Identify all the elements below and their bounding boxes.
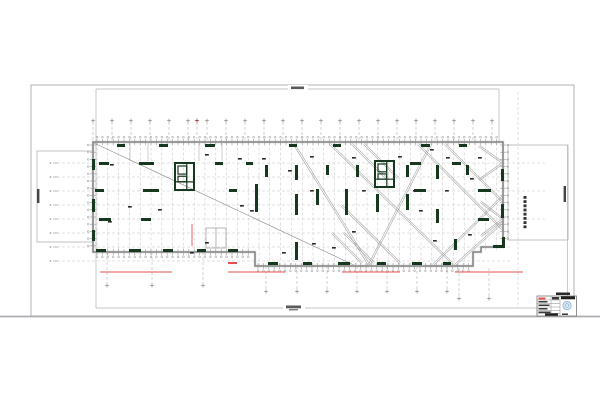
edge-tick-circle — [393, 136, 395, 138]
edge-tick-circle — [199, 136, 201, 138]
wall-segment — [501, 204, 504, 218]
grid-stub-dot — [356, 291, 358, 293]
outer-border — [31, 85, 574, 316]
edge-tick-circle — [161, 256, 163, 258]
edge-tick-circle — [274, 136, 276, 138]
wall-segment — [338, 262, 350, 265]
edge-tick-circle — [193, 136, 195, 138]
edge-tick-circle — [96, 136, 98, 138]
wall-segment — [268, 262, 278, 265]
edge-tick-circle — [452, 270, 454, 272]
grid-stub-dot — [491, 120, 493, 122]
edge-tick-circle — [318, 136, 320, 138]
edge-tick-circle — [231, 256, 233, 258]
edge-tick-circle — [215, 256, 217, 258]
microtext-mark — [413, 190, 417, 192]
wall-segment — [295, 194, 298, 215]
wall-segment — [95, 189, 104, 192]
edge-tick-circle — [87, 180, 89, 182]
drawing-sheet — [0, 0, 600, 400]
edge-tick-circle — [242, 136, 244, 138]
title-block-text-bar — [562, 314, 568, 316]
edge-tick-circle — [220, 256, 222, 258]
grid-stub-dot — [282, 120, 284, 122]
wall-segment — [159, 144, 168, 147]
grid-stub-dot — [386, 291, 388, 293]
edge-tick-circle — [322, 270, 324, 272]
edge-tick-circle — [172, 256, 174, 258]
edge-tick-circle — [156, 256, 158, 258]
edge-tick-circle — [311, 270, 313, 272]
grid-stub-dot — [396, 120, 398, 122]
microtext-mark — [332, 247, 336, 249]
edge-tick-circle — [366, 136, 368, 138]
microtext-mark — [433, 240, 437, 242]
grid-stub-dot — [196, 120, 198, 122]
wall-segment — [478, 218, 489, 221]
wall-segment — [197, 249, 206, 252]
edge-tick-circle — [139, 136, 141, 138]
vertical-microtext-stack — [524, 204, 527, 207]
vertical-microtext — [37, 189, 39, 203]
title-block-red-text — [539, 298, 546, 300]
brace-line — [419, 143, 504, 229]
edge-tick-circle — [193, 256, 195, 258]
grid-stub-dot — [265, 291, 267, 293]
approval-stamp-icon — [563, 301, 571, 309]
drawing-title-microtext — [286, 306, 301, 309]
edge-tick-circle — [145, 136, 147, 138]
wall-segment — [141, 218, 151, 221]
grid-stub-dot — [225, 120, 227, 122]
edge-tick-circle — [392, 270, 394, 272]
edge-tick-circle — [237, 136, 239, 138]
edge-tick-circle — [107, 136, 109, 138]
grid-stub-dot — [458, 298, 460, 300]
edge-tick-circle — [372, 136, 374, 138]
edge-tick-circle — [87, 144, 89, 146]
brace-line — [432, 195, 502, 264]
edge-tick-circle — [87, 159, 89, 161]
wall-segment — [92, 199, 95, 212]
edge-tick-circle — [134, 136, 136, 138]
edge-tick-circle — [210, 256, 212, 258]
microtext-mark — [446, 157, 450, 159]
grid-stub-dot — [168, 120, 170, 122]
edge-tick-circle — [183, 256, 185, 258]
edge-tick-circle — [269, 136, 271, 138]
microtext-mark — [288, 170, 292, 172]
bracing — [94, 143, 504, 266]
edge-tick-circle — [102, 136, 104, 138]
edge-tick-circle — [469, 136, 471, 138]
edge-tick-circle — [177, 256, 179, 258]
edge-tick-circle — [231, 136, 233, 138]
edge-tick-circle — [306, 270, 308, 272]
wall-segment — [295, 242, 298, 260]
grid-terminator-dot — [50, 260, 52, 262]
wall-segment — [478, 189, 491, 192]
edge-tick-circle — [457, 270, 459, 272]
edge-tick-circle — [226, 256, 228, 258]
vertical-microtext-stack — [524, 196, 527, 199]
wall-segment — [255, 184, 258, 212]
wall-segment — [377, 262, 386, 265]
vertical-microtext-stack — [524, 221, 527, 224]
title-block-black-bar — [561, 296, 575, 299]
wall-segment — [139, 162, 154, 165]
edge-tick-circle — [409, 136, 411, 138]
edge-tick-circle — [172, 136, 174, 138]
edge-tick-circle — [166, 136, 168, 138]
grid-stub-dot — [130, 120, 132, 122]
drawing-scale-microtext — [289, 309, 298, 310]
edge-tick-circle — [431, 136, 433, 138]
microtext-mark — [310, 190, 314, 192]
edge-tick-circle — [87, 202, 89, 204]
red-microtext — [228, 262, 237, 264]
wall-segment — [326, 165, 329, 175]
edge-tick-circle — [382, 136, 384, 138]
wall-segment — [129, 249, 141, 252]
edge-tick-circle — [257, 270, 259, 272]
edge-tick-circle — [360, 270, 362, 272]
edge-tick-circle — [441, 270, 443, 272]
wall-segment — [229, 189, 237, 192]
grid-stub-dot — [415, 120, 417, 122]
edge-tick-circle — [87, 173, 89, 175]
sheet-frames — [0, 85, 600, 317]
grid-terminator-dot — [50, 218, 52, 220]
edge-tick-circle — [273, 270, 275, 272]
edge-tick-circle — [435, 270, 437, 272]
title-block-text-bar — [539, 301, 548, 303]
edge-tick-circle — [150, 256, 152, 258]
edge-tick-circle — [279, 270, 281, 272]
grid-terminator-dot — [50, 190, 52, 192]
edge-tick-circle — [442, 136, 444, 138]
wall-segment — [412, 262, 422, 265]
edge-tick-circle — [414, 270, 416, 272]
microtext-mark — [445, 190, 449, 192]
edge-tick-circle — [134, 256, 136, 258]
grid-stub-dot — [472, 120, 474, 122]
wall-segment — [436, 165, 439, 179]
edge-tick-circle — [300, 270, 302, 272]
edge-tick-circle — [425, 270, 427, 272]
edge-tick-circle — [87, 187, 89, 189]
microtext-mark — [128, 206, 132, 208]
edge-tick-circle — [338, 270, 340, 272]
wall-segment — [303, 262, 312, 265]
brace-line — [434, 197, 504, 266]
edge-tick-circle — [474, 136, 476, 138]
edge-tick-circle — [215, 136, 217, 138]
wall-segment — [99, 218, 111, 221]
edge-tick-circle — [398, 270, 400, 272]
edge-tick-circle — [183, 136, 185, 138]
wall-segment — [345, 189, 348, 215]
grid-stub-dot — [206, 120, 208, 122]
grid-stub-dot — [377, 120, 379, 122]
edge-tick-circle — [253, 136, 255, 138]
edge-tick-circle — [295, 270, 297, 272]
grid-stub-dot — [434, 120, 436, 122]
wall-segment — [454, 239, 457, 250]
partitions — [130, 142, 226, 248]
edge-tick-circle — [96, 256, 98, 258]
microtext-mark — [310, 156, 314, 158]
brace-line — [345, 232, 375, 262]
microtext-mark — [250, 210, 254, 212]
grid-stub-dot — [106, 285, 108, 287]
grid-terminator-dot — [50, 162, 52, 164]
edge-tick-circle — [371, 270, 373, 272]
edge-tick-circle — [263, 270, 265, 272]
edge-tick-circle — [327, 270, 329, 272]
edge-tick-circle — [296, 136, 298, 138]
wall-segment — [92, 159, 95, 170]
brace-line — [479, 164, 503, 181]
edge-tick-circle — [102, 256, 104, 258]
edge-tick-circle — [161, 136, 163, 138]
wall-segment — [356, 165, 359, 177]
edge-tick-circle — [430, 270, 432, 272]
edge-tick-circle — [485, 136, 487, 138]
microtext-mark — [262, 158, 266, 160]
grid-stub-dot — [446, 291, 448, 293]
wall-segment — [215, 162, 223, 165]
vertical-microtext-stack — [524, 225, 527, 228]
vertical-microtext-stack — [524, 209, 527, 212]
vertical-microtext — [564, 186, 566, 202]
wall-segment — [502, 237, 505, 248]
wall-segment — [410, 162, 421, 165]
edge-tick-circle — [87, 209, 89, 211]
floor-plan-canvas[interactable] — [0, 0, 600, 400]
edge-tick-circle — [354, 270, 356, 272]
grid-terminator-dot — [50, 176, 52, 178]
wall-segment — [265, 165, 268, 177]
edge-tick-circle — [403, 270, 405, 272]
edge-tick-circle — [387, 270, 389, 272]
wall-segment — [143, 189, 159, 192]
wall-segment — [333, 144, 341, 147]
edge-tick-circle — [458, 136, 460, 138]
microtext-mark — [240, 205, 244, 207]
edge-tick-circle — [408, 270, 410, 272]
wall-segment — [466, 165, 469, 175]
title-block-black-bar — [545, 313, 558, 315]
microtext-mark — [398, 156, 402, 158]
wall-segment — [459, 144, 467, 147]
wall-segment — [289, 144, 297, 147]
edge-tick-circle — [258, 136, 260, 138]
grid-terminator-dot — [50, 232, 52, 234]
grid-stub-dot — [202, 285, 204, 287]
edge-tick-circle — [177, 136, 179, 138]
edge-tick-circle — [496, 136, 498, 138]
edge-tick-circle — [118, 136, 120, 138]
edge-tick-circle — [376, 270, 378, 272]
grid-terminator-dot — [50, 246, 52, 248]
brace-line — [333, 232, 363, 262]
grid-stub-dot — [358, 120, 360, 122]
grid-stub-dot — [453, 120, 455, 122]
wall-segment — [295, 165, 298, 180]
wall-segment — [406, 194, 409, 210]
drawing-title-microtext — [291, 87, 304, 90]
edge-tick-circle — [87, 195, 89, 197]
grid-stub-dot — [92, 120, 94, 122]
edge-tick-circle — [199, 256, 201, 258]
wall-segment — [246, 162, 253, 165]
wall-segment — [92, 230, 95, 241]
edge-tick-circle — [87, 245, 89, 247]
edge-tick-circle — [204, 256, 206, 258]
edge-tick-circle — [247, 256, 249, 258]
edge-tick-circle — [404, 136, 406, 138]
edge-tick-circle — [420, 136, 422, 138]
microtext-mark — [419, 210, 423, 212]
wall-segment — [436, 209, 439, 223]
microtext-mark — [190, 252, 194, 254]
edge-tick-circle — [468, 270, 470, 272]
edge-tick-circle — [87, 166, 89, 168]
title-block-text-bar — [539, 312, 551, 314]
microtext-mark — [158, 209, 162, 211]
edge-tick-circle — [426, 136, 428, 138]
vertical-microtext-stack — [524, 200, 527, 203]
grid-stub-dot — [416, 291, 418, 293]
grid-stub-dot — [339, 120, 341, 122]
edge-tick-circle — [317, 270, 319, 272]
grid-terminator-dot — [50, 204, 52, 206]
grid-stub-dot — [111, 120, 113, 122]
grid-stub-dot — [320, 120, 322, 122]
edge-tick-circle — [284, 270, 286, 272]
edge-tick-circle — [447, 136, 449, 138]
edge-tick-circle — [188, 256, 190, 258]
microtext-mark — [478, 157, 482, 159]
edge-tick-circle — [118, 256, 120, 258]
edge-tick-circle — [237, 256, 239, 258]
edge-tick-circle — [349, 270, 351, 272]
edge-tick-circle — [145, 256, 147, 258]
edge-tick-circle — [220, 136, 222, 138]
microtext-mark — [430, 149, 434, 151]
left-annex-box — [37, 151, 93, 242]
microtext-mark — [352, 231, 356, 233]
wall-segment — [205, 144, 215, 147]
edge-tick-circle — [290, 270, 292, 272]
brace-line — [454, 221, 502, 264]
wall-segment — [99, 162, 109, 165]
microtext-mark — [205, 154, 209, 156]
edge-tick-circle — [123, 256, 125, 258]
edge-tick-circle — [123, 136, 125, 138]
grid-stub-dot — [151, 285, 153, 287]
edge-tick-circle — [150, 136, 152, 138]
wall-segment — [501, 169, 504, 181]
wall-segment — [452, 162, 461, 165]
edge-tick-circle — [268, 270, 270, 272]
microtext-mark — [282, 252, 286, 254]
edge-tick-circle — [285, 136, 287, 138]
edge-tick-circle — [129, 136, 131, 138]
wall-segment — [163, 249, 173, 252]
edge-tick-circle — [365, 270, 367, 272]
wall-segment — [316, 189, 319, 205]
microtext-mark — [238, 158, 242, 160]
edge-tick-circle — [112, 256, 114, 258]
brace-line — [444, 145, 502, 203]
edge-tick-circle — [328, 136, 330, 138]
brace-line — [343, 234, 373, 264]
core-cell — [378, 164, 387, 172]
wall-segment — [228, 249, 238, 252]
edge-tick-circle — [87, 223, 89, 225]
microtext-mark — [362, 190, 366, 192]
microtext-mark — [352, 157, 356, 159]
edge-tick-circle — [381, 270, 383, 272]
grid-stub-dot — [296, 291, 298, 293]
grid-stub-dot — [488, 298, 490, 300]
right-annex-box — [508, 145, 568, 240]
wall-segment — [421, 144, 430, 147]
vertical-microtext-stack — [524, 213, 527, 216]
brace-line — [446, 143, 504, 201]
wall-segment — [443, 262, 451, 265]
wall-segment — [406, 165, 409, 177]
edge-tick-circle — [462, 270, 464, 272]
edge-tick-circle — [388, 136, 390, 138]
grid-stub-dot — [301, 120, 303, 122]
title-block-text-bar — [552, 297, 559, 300]
edge-tick-circle — [107, 256, 109, 258]
edge-tick-circle — [312, 136, 314, 138]
edge-tick-circle — [166, 256, 168, 258]
grid-stub-dot — [244, 120, 246, 122]
vertical-microtext-stack — [524, 217, 527, 220]
edge-tick-circle — [87, 231, 89, 233]
edge-tick-circle — [399, 136, 401, 138]
edge-tick-circle — [87, 238, 89, 240]
brace-line — [331, 234, 361, 264]
edge-tick-circle — [344, 270, 346, 272]
wall-segment — [376, 194, 379, 212]
edge-tick-circle — [345, 136, 347, 138]
edge-tick-circle — [436, 136, 438, 138]
edge-tick-circle — [323, 136, 325, 138]
edge-tick-circle — [355, 136, 357, 138]
title-block-text-bar — [539, 305, 550, 307]
microtext-mark — [470, 178, 474, 180]
edge-tick-circle — [242, 256, 244, 258]
microtext-mark — [205, 242, 209, 244]
edge-tick-circle — [129, 256, 131, 258]
edge-tick-circle — [247, 136, 249, 138]
microtext-mark — [556, 293, 570, 296]
annotations — [37, 85, 570, 312]
edge-tick-circle — [139, 256, 141, 258]
edge-tick-circle — [204, 136, 206, 138]
edge-tick-circle — [307, 136, 309, 138]
brace-line — [456, 223, 504, 266]
grid-stub-dot — [263, 120, 265, 122]
core-cell — [178, 166, 187, 174]
edge-tick-circle — [333, 270, 335, 272]
